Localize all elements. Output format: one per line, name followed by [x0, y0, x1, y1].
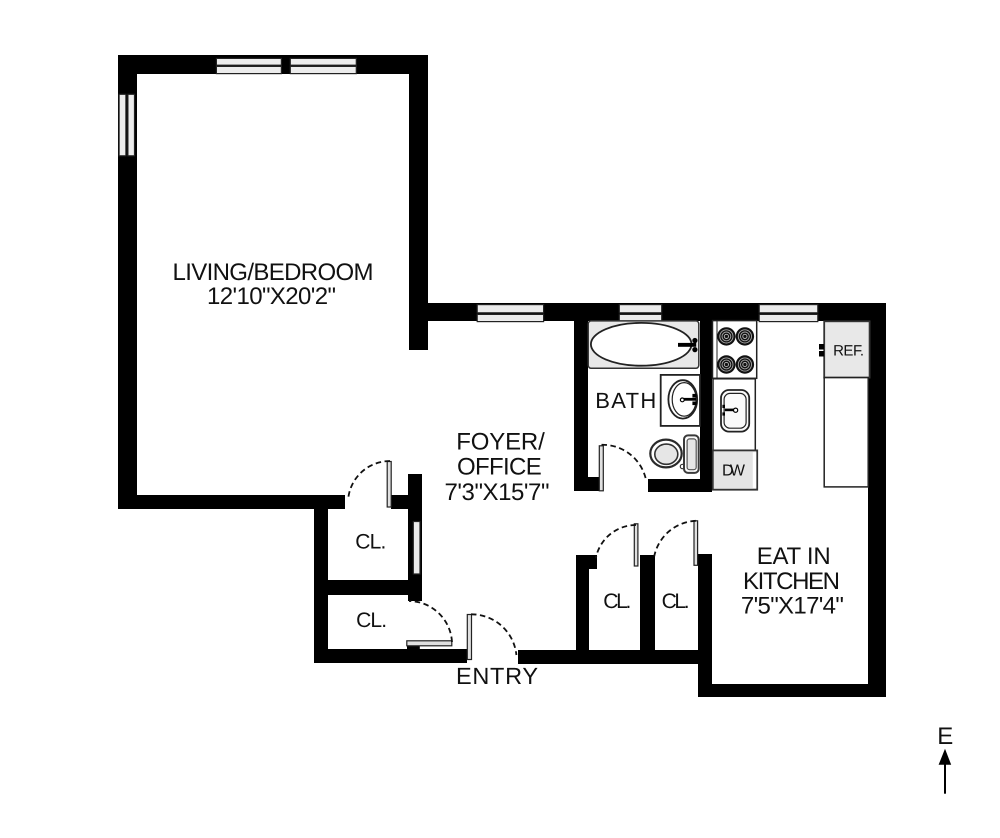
svg-text:LIVING/BEDROOM: LIVING/BEDROOM: [173, 259, 374, 286]
svg-text:CL.: CL.: [355, 531, 386, 554]
svg-text:REF.: REF.: [833, 342, 864, 359]
svg-text:CL.: CL.: [356, 609, 387, 632]
svg-text:CL.: CL.: [603, 590, 631, 613]
svg-text:E: E: [937, 723, 953, 750]
svg-text:EAT IN: EAT IN: [757, 543, 831, 570]
svg-text:FOYER/: FOYER/: [456, 429, 545, 456]
svg-text:7'5"X17'4": 7'5"X17'4": [741, 593, 844, 620]
svg-text:7'3"X15'7": 7'3"X15'7": [445, 479, 550, 506]
svg-text:DW: DW: [722, 463, 746, 480]
svg-text:KITCHEN: KITCHEN: [743, 568, 840, 595]
svg-text:CL.: CL.: [662, 590, 690, 613]
svg-text:ENTRY: ENTRY: [456, 663, 538, 689]
svg-text:OFFICE: OFFICE: [457, 453, 542, 480]
svg-text:BATH: BATH: [595, 388, 656, 413]
svg-text:12'10"X20'2": 12'10"X20'2": [207, 283, 336, 310]
